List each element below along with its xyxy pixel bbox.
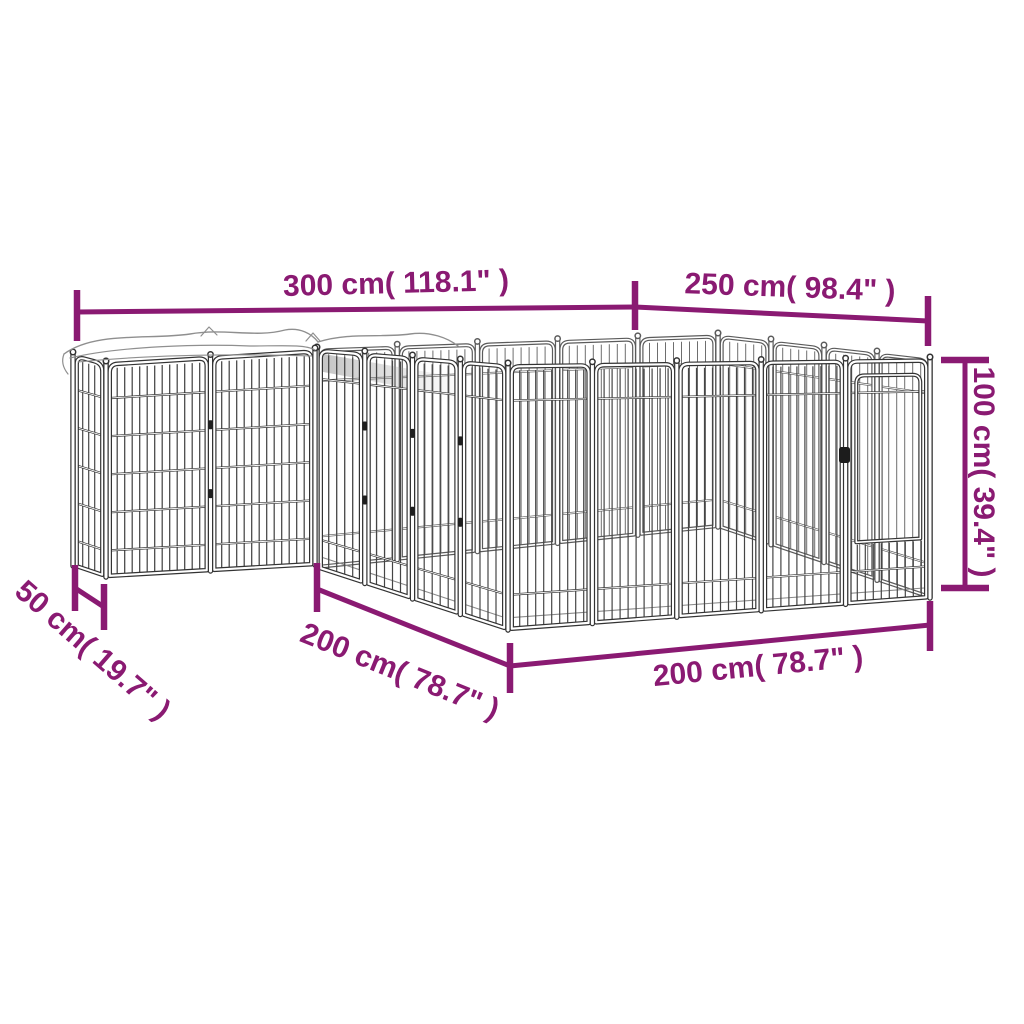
dim-height-label: 100 cm( 39.4" )	[967, 366, 1000, 577]
playpen-diagram-svg: 300 cm( 118.1" ) 250 cm( 98.4" ) 100 cm(…	[0, 0, 1024, 1024]
product-dimension-diagram: 300 cm( 118.1" ) 250 cm( 98.4" ) 100 cm(…	[0, 0, 1024, 1024]
dim-top-left-label: 300 cm( 118.1" )	[283, 264, 510, 303]
dim-top-right-label: 250 cm( 98.4" )	[684, 267, 896, 307]
covered-annex	[70, 345, 317, 577]
dim-side-left-label: 200 cm( 78.7" )	[296, 617, 504, 727]
playpen-wireframe	[63, 327, 933, 630]
